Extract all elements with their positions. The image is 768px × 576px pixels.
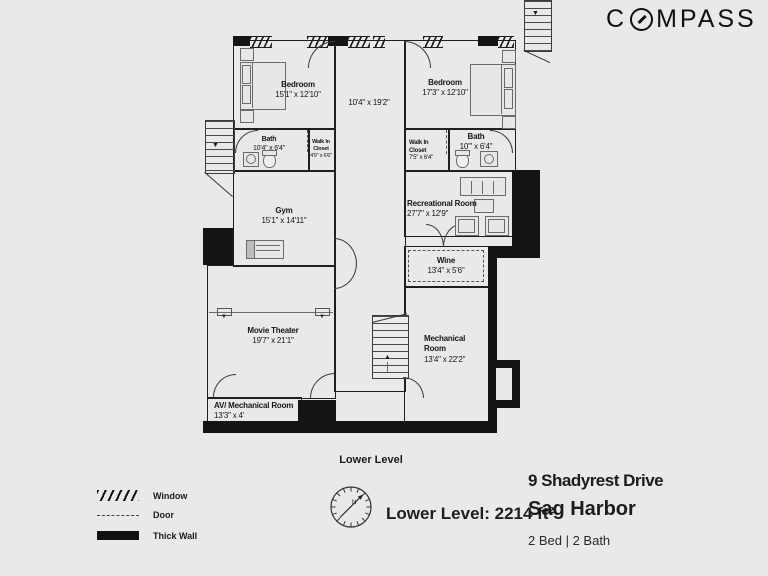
compass-dial-icon: N: [328, 484, 374, 530]
right-notch-inner: [496, 368, 512, 400]
listing-info: 9 Shadyrest Drive Sag Harbor 2 Bed | 2 B…: [528, 471, 758, 548]
bed-right-pillow-1: [504, 68, 513, 88]
treadmill-line-2: [256, 250, 280, 251]
sink-right-basin-icon: [484, 154, 494, 164]
label-recreational: Recreational Room27'7" x 12'9": [407, 199, 491, 220]
label-gym: Gym15'1" x 14'11": [254, 206, 314, 227]
bed-left-pillow-2: [242, 85, 251, 104]
listing-address: 9 Shadyrest Drive: [528, 471, 758, 491]
stairs-up-arrow-icon: ▲: [384, 354, 391, 361]
treadmill-line-1: [256, 245, 280, 246]
stairs-arrow-stem: [387, 362, 388, 373]
listing-beds-baths: 2 Bed | 2 Bath: [528, 533, 758, 548]
nightstand-right-2: [502, 116, 516, 129]
sink-left-basin-icon: [246, 154, 256, 164]
speaker-right-arrow-icon: ▼: [319, 314, 325, 320]
level-caption: Lower Level: [301, 454, 441, 466]
compass-north-label: N: [352, 500, 356, 506]
stairs-topright-exterior: [524, 0, 552, 52]
speaker-left-arrow-icon: ▼: [221, 314, 227, 320]
nightstand-right-1: [502, 50, 516, 63]
thick-wall-top-1: [233, 36, 250, 46]
armchair-2-seat: [488, 219, 505, 233]
stairs-left-diagonal: [204, 172, 233, 197]
stairs-left-exterior: [205, 120, 235, 174]
label-mechanical: Mechanical Room13'4" x 22'2": [424, 334, 480, 365]
sofa-divider-2: [482, 181, 483, 194]
floorplan-page: { "brand": {"name": "COMPASS"}, "plan": …: [0, 0, 768, 576]
label-av-mechanical: AV/ Mechanical Room13'3" x 4': [214, 401, 314, 422]
nightstand-left-2: [240, 110, 254, 123]
bed-right-headboard-line: [501, 64, 502, 114]
sofa-divider-1: [471, 181, 472, 194]
label-closet-left: Walk In Closet4'9" x 6'6": [308, 139, 334, 160]
compass-logo-text-rest: MPASS: [656, 5, 757, 34]
thick-wall-swatch-icon: [97, 531, 139, 540]
thick-wall-right-block: [512, 170, 540, 258]
bed-left-pillow-1: [242, 65, 251, 84]
thick-wall-top-3: [478, 36, 498, 46]
label-bath-left: Bath10'4" x 6'4": [236, 135, 302, 153]
legend-door-label: Door: [153, 510, 174, 520]
thick-wall-bottom: [203, 421, 497, 433]
label-bath-right: Bath10'" x 6'4": [445, 132, 507, 153]
sofa: [460, 177, 506, 196]
compass-logo-text-c: C: [606, 5, 627, 34]
window-hatch-5: [423, 36, 443, 48]
treadmill-console: [246, 240, 255, 259]
label-bedroom-right: Bedroom17'3" x 12'10": [413, 78, 477, 99]
label-closet-right: Walk In Closet7'5" x 6'4": [409, 140, 443, 163]
stairs-left-down-arrow-icon: ▼: [212, 142, 219, 149]
armchair-1-seat: [458, 219, 475, 233]
sofa-divider-3: [493, 181, 494, 194]
window-hatch-4: [373, 36, 385, 48]
door-swatch-icon: [97, 515, 139, 516]
thick-wall-left-block: [203, 228, 233, 265]
bed-left-headboard-line: [252, 62, 253, 108]
window-hatch-6: [498, 36, 514, 48]
compass-logo: C MPASS: [606, 5, 757, 34]
compass-logo-o-icon: [630, 8, 653, 31]
legend-window-label: Window: [153, 491, 187, 501]
stairs-mechanical: [372, 315, 409, 379]
window-swatch-icon: [97, 490, 139, 501]
legend: Window Door Thick Wall: [95, 486, 265, 546]
legend-thick-wall-label: Thick Wall: [153, 531, 197, 541]
label-bedroom-left: Bedroom15'1" x 12'10": [266, 80, 330, 101]
label-hallway: 10'4" x 19'2": [336, 98, 402, 108]
window-hatch-3: [348, 36, 370, 48]
floorplan-drawing: ▼ ▼ ▲ ▼: [198, 0, 560, 448]
bed-right-pillow-2: [504, 89, 513, 109]
nightstand-left-1: [240, 48, 254, 61]
label-wine: Wine13'4" x 5'6": [408, 256, 484, 277]
label-movie-theater: Movie Theater19'7" x 21'1": [236, 326, 310, 347]
listing-city: Sag Harbor: [528, 498, 758, 521]
window-hatch-1: [250, 36, 272, 48]
stairs-topright-down-arrow-icon: ▼: [532, 10, 539, 17]
